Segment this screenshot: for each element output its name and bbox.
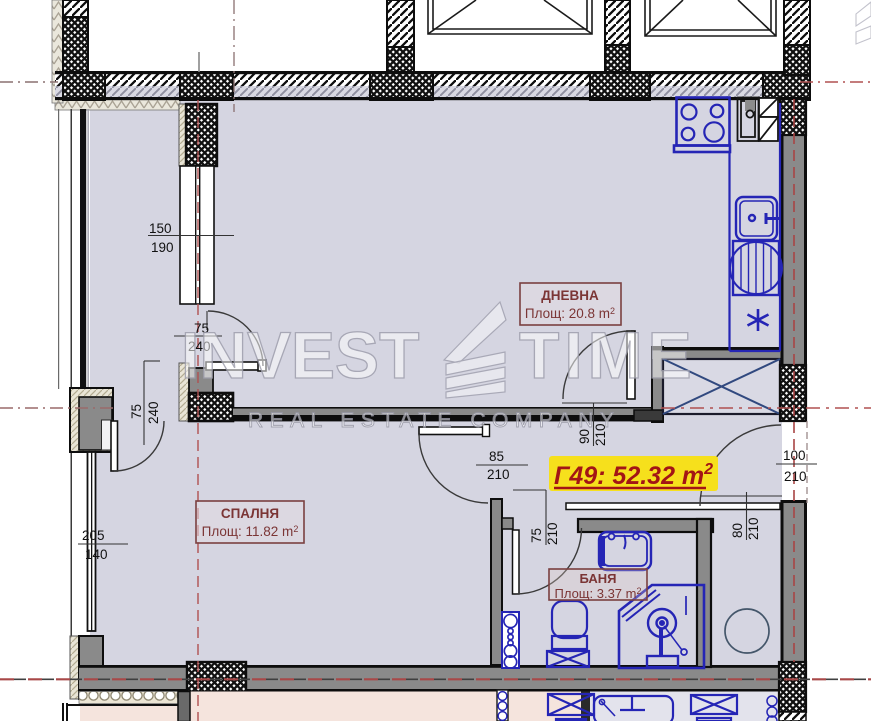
svg-text:INVEST: INVEST (181, 318, 419, 392)
svg-text:СПАЛНЯ: СПАЛНЯ (221, 506, 279, 521)
svg-text:ДНЕВНА: ДНЕВНА (541, 288, 599, 303)
svg-text:150: 150 (149, 221, 172, 236)
svg-text:210: 210 (487, 467, 510, 482)
svg-text:140: 140 (85, 547, 108, 562)
svg-text:80: 80 (730, 523, 745, 538)
svg-text:100: 100 (783, 448, 806, 463)
svg-text:Г49: 52.32 m2: Г49: 52.32 m2 (554, 461, 713, 490)
svg-text:240: 240 (146, 401, 161, 424)
svg-text:Площ: 11.82 m2: Площ: 11.82 m2 (202, 524, 299, 539)
svg-text:190: 190 (151, 240, 174, 255)
svg-text:210: 210 (784, 469, 807, 484)
svg-text:210: 210 (545, 522, 560, 545)
svg-text:TIME: TIME (519, 318, 697, 392)
svg-text:Площ: 3.37 m2: Площ: 3.37 m2 (555, 586, 642, 601)
svg-text:75: 75 (129, 404, 144, 419)
svg-text:85: 85 (489, 449, 504, 464)
svg-text:205: 205 (82, 528, 105, 543)
svg-text:210: 210 (746, 517, 761, 540)
svg-text:REAL ESTATE COMPANY: REAL ESTATE COMPANY (248, 409, 620, 432)
svg-text:75: 75 (529, 528, 544, 543)
svg-text:БАНЯ: БАНЯ (580, 571, 617, 586)
